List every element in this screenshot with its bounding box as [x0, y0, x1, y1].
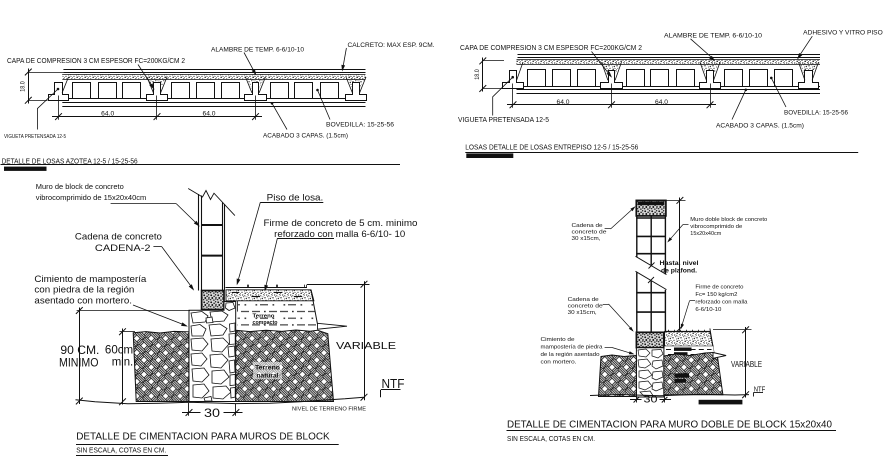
svg-text:concreto de: concreto de — [572, 230, 607, 236]
svg-text:LOSAS DETALLE DE LOSAS ENTREPI: LOSAS DETALLE DE LOSAS ENTREPISO 12-5 / … — [465, 142, 638, 151]
svg-text:BOVEDILLA: 15-25-56: BOVEDILLA: 15-25-56 — [784, 109, 848, 116]
svg-text:CADENA-2: CADENA-2 — [95, 243, 151, 254]
svg-text:VARIABLE: VARIABLE — [336, 340, 396, 352]
svg-text:NTF: NTF — [382, 376, 405, 391]
svg-text:Cadena de concreto: Cadena de concreto — [75, 232, 162, 243]
svg-text:ACABADO 3 CAPAS. (1.5cm): ACABADO 3 CAPAS. (1.5cm) — [263, 132, 348, 139]
svg-text:18.0: 18.0 — [20, 81, 26, 92]
svg-text:15x20x40cm: 15x20x40cm — [690, 231, 721, 237]
svg-text:64.0: 64.0 — [203, 111, 217, 118]
svg-text:SIN ESCALA, COTAS EN CM.: SIN ESCALA, COTAS EN CM. — [507, 436, 595, 443]
svg-text:Muro de block de concreto: Muro de block de concreto — [36, 184, 124, 191]
svg-text:VIGUETA PRETENSADA 12-5: VIGUETA PRETENSADA 12-5 — [4, 134, 66, 140]
svg-text:asentado con mortero.: asentado con mortero. — [34, 296, 132, 307]
svg-text:Fc= 150 kg/cm2: Fc= 150 kg/cm2 — [695, 292, 737, 298]
svg-text:Terreno: Terreno — [253, 314, 275, 320]
svg-text:con mortero.: con mortero. — [541, 360, 577, 366]
svg-text:VIGUETA PRETENSADA 12-5: VIGUETA PRETENSADA 12-5 — [458, 117, 549, 124]
svg-text:ALAMBRE DE TEMP. 6-6/10-10: ALAMBRE DE TEMP. 6-6/10-10 — [664, 33, 762, 40]
svg-text:Terreno: Terreno — [255, 366, 280, 372]
svg-text:reforzado con malla: reforzado con malla — [695, 300, 748, 306]
svg-text:vibrocomprimido de 15x20x40cm: vibrocomprimido de 15x20x40cm — [36, 195, 147, 202]
svg-text:de plafond.: de plafond. — [661, 267, 697, 274]
svg-text:DETALLE DE CIMENTACION PARA MU: DETALLE DE CIMENTACION PARA MUROS DE BLO… — [76, 431, 330, 443]
svg-text:Cadena de: Cadena de — [572, 223, 603, 229]
svg-text:mampostería de piedra: mampostería de piedra — [541, 345, 604, 351]
svg-text:Piso de losa.: Piso de losa. — [267, 192, 324, 203]
svg-text:Firme de concreto: Firme de concreto — [695, 285, 743, 291]
svg-text:6-6/10-10: 6-6/10-10 — [695, 307, 721, 313]
svg-text:30: 30 — [204, 408, 220, 420]
svg-text:Muro doble block de concreto: Muro doble block de concreto — [690, 217, 767, 223]
svg-text:Cimiento de: Cimiento de — [541, 337, 575, 343]
svg-text:18.0: 18.0 — [475, 69, 481, 80]
svg-text:VARIABLE: VARIABLE — [731, 360, 762, 369]
svg-text:concreto de: concreto de — [568, 304, 603, 310]
svg-text:CAPA DE COMPRESION 3 CM ESPESO: CAPA DE COMPRESION 3 CM ESPESOR FC=200KG… — [7, 58, 185, 65]
svg-text:vibrocomprimido de: vibrocomprimido de — [690, 224, 742, 230]
svg-text:CALCRETO: MAX ESP. 9CM.: CALCRETO: MAX ESP. 9CM. — [348, 42, 435, 49]
svg-text:Cadena de: Cadena de — [568, 297, 599, 303]
svg-text:de la región asentado: de la región asentado — [541, 352, 600, 358]
svg-text:MINIMO: MINIMO — [59, 355, 99, 369]
svg-text:natural: natural — [257, 374, 279, 380]
svg-text:BOVEDILLA: 15-25-56: BOVEDILLA: 15-25-56 — [326, 121, 395, 128]
svg-text:64.0: 64.0 — [557, 99, 571, 106]
svg-text:ACABADO 3 CAPAS. (1.5cm): ACABADO 3 CAPAS. (1.5cm) — [716, 123, 804, 130]
svg-text:SIN ESCALA, COTAS EN CM.: SIN ESCALA, COTAS EN CM. — [76, 448, 166, 455]
svg-text:min.: min. — [112, 355, 134, 369]
svg-text:con piedra de la región: con piedra de la región — [34, 285, 134, 296]
svg-text:Hasta. nivel: Hasta. nivel — [660, 260, 699, 267]
svg-text:30 x15cm,: 30 x15cm, — [568, 310, 597, 316]
svg-text:30: 30 — [644, 395, 659, 406]
svg-text:Firme de concreto de 5 cm. min: Firme de concreto de 5 cm. minimo — [264, 218, 418, 229]
svg-text:64.0: 64.0 — [655, 99, 669, 106]
svg-text:ALAMBRE DE TEMP. 6-6/10-10: ALAMBRE DE TEMP. 6-6/10-10 — [211, 47, 304, 54]
svg-text:Cimiento de mampostería: Cimiento de mampostería — [34, 274, 147, 285]
svg-text:30 x15cm,: 30 x15cm, — [572, 236, 601, 242]
svg-text:DETALLE DE CIMENTACION PARA MU: DETALLE DE CIMENTACION PARA MURO DOBLE D… — [507, 419, 832, 431]
svg-text:ADHESIVO Y VITRO PISO: ADHESIVO Y VITRO PISO — [803, 30, 883, 37]
svg-text:NIVEL DE TERRENO FIRME: NIVEL DE TERRENO FIRME — [292, 406, 367, 412]
svg-text:compacto: compacto — [253, 320, 278, 326]
svg-text:DETALLE DE LOSAS AZOTEA 12-5 /: DETALLE DE LOSAS AZOTEA 12-5 / 15-25-56 — [2, 156, 138, 165]
svg-text:64.0: 64.0 — [101, 111, 115, 118]
svg-text:CAPA DE COMPRESION 3 CM ESPESO: CAPA DE COMPRESION 3 CM ESPESOR FC=200KG… — [460, 45, 642, 52]
